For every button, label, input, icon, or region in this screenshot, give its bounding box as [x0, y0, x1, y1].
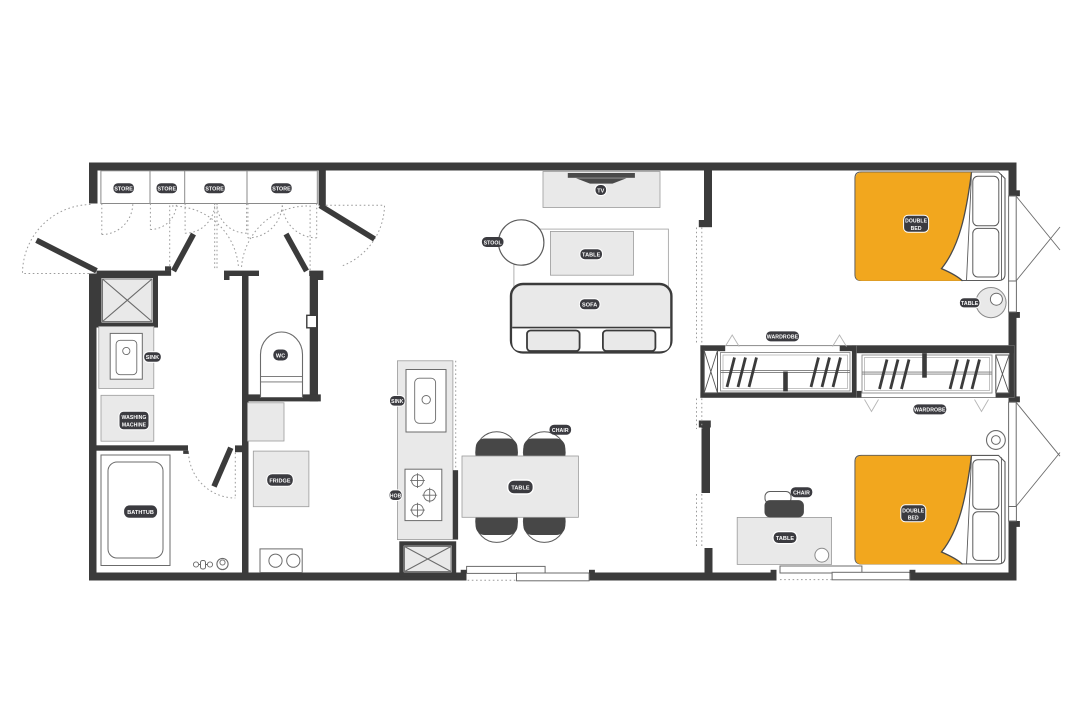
svg-text:CHAIR: CHAIR [793, 491, 810, 497]
svg-text:FRIDGE: FRIDGE [269, 478, 291, 484]
svg-text:HOB: HOB [390, 493, 402, 499]
svg-text:DOUBLE: DOUBLE [905, 219, 928, 225]
svg-text:TABLE: TABLE [582, 253, 601, 259]
svg-text:SINK: SINK [146, 355, 159, 361]
svg-text:SINK: SINK [391, 399, 404, 405]
svg-text:STORE: STORE [272, 187, 291, 193]
svg-text:WC: WC [276, 353, 285, 359]
svg-text:TABLE: TABLE [961, 301, 979, 307]
svg-text:CHAIR: CHAIR [552, 428, 569, 434]
svg-text:DOUBLE: DOUBLE [902, 508, 925, 514]
svg-text:TABLE: TABLE [776, 536, 795, 542]
svg-text:SOFA: SOFA [582, 303, 597, 309]
svg-text:STORE: STORE [158, 187, 177, 193]
svg-text:STORE: STORE [205, 187, 224, 193]
svg-text:WARDROBE: WARDROBE [767, 335, 799, 341]
svg-text:WASHING: WASHING [122, 415, 147, 421]
svg-text:BATHTUB: BATHTUB [127, 510, 154, 516]
svg-text:BED: BED [908, 516, 919, 522]
svg-text:TABLE: TABLE [511, 485, 530, 491]
svg-text:TV: TV [597, 188, 604, 194]
svg-text:BED: BED [911, 226, 922, 232]
svg-text:STORE: STORE [114, 187, 133, 193]
svg-text:MACHINE: MACHINE [122, 422, 147, 428]
svg-text:WARDROBE: WARDROBE [914, 408, 946, 414]
svg-text:STOOL: STOOL [484, 240, 503, 246]
